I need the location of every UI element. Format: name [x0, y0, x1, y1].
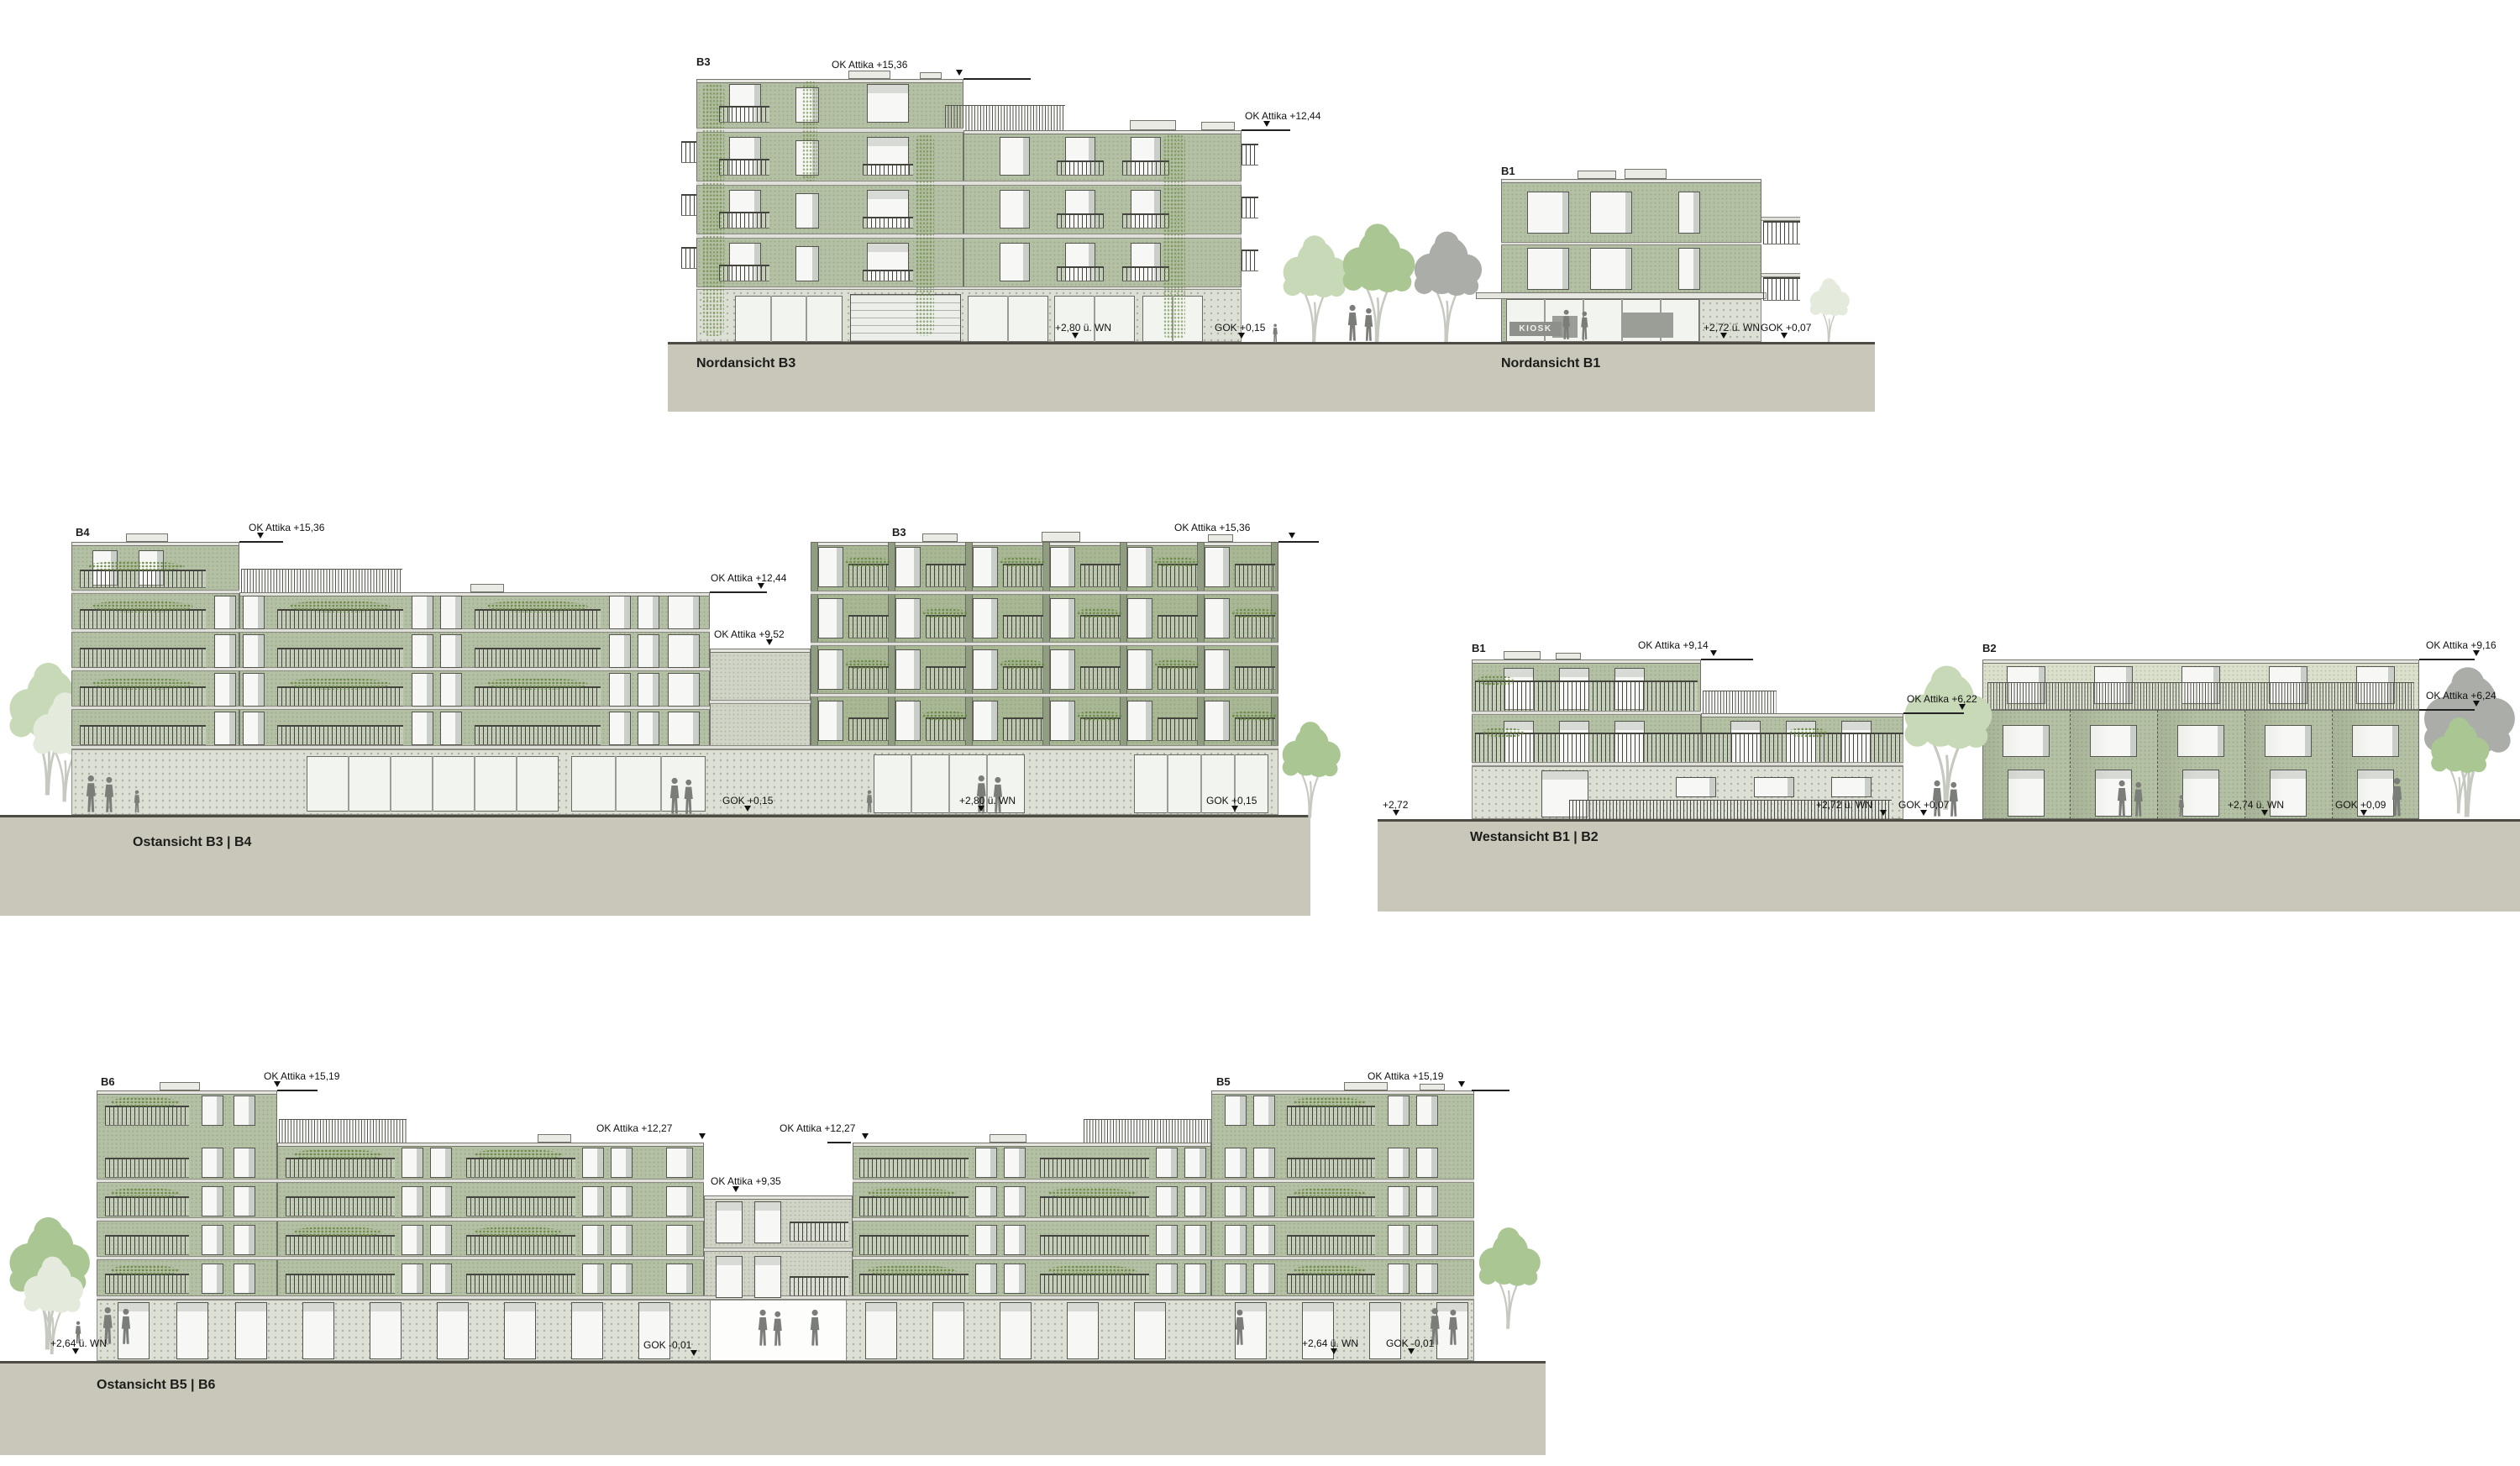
- building-label: B3: [892, 526, 906, 539]
- window: [666, 1186, 693, 1216]
- balcony-plants: [475, 1149, 563, 1160]
- window: [234, 1186, 255, 1216]
- annotation: GOK -0,01: [643, 1339, 691, 1351]
- tree-icon: [1789, 273, 1869, 344]
- balcony-railing: [1287, 1196, 1375, 1216]
- annotation-text: GOK +0,15: [1215, 322, 1265, 334]
- balcony-railing: [848, 717, 889, 741]
- floor-slab: [97, 1217, 704, 1222]
- balcony-railing: [926, 666, 966, 690]
- annotation: GOK +0,09: [2335, 799, 2386, 811]
- bay-separator: [2332, 710, 2334, 819]
- window: [1416, 1148, 1438, 1178]
- dim-line: [710, 591, 767, 593]
- balcony-railing: [105, 1196, 189, 1216]
- level-marker-icon: [766, 639, 773, 649]
- window: [214, 712, 236, 745]
- balcony-railing: [1057, 266, 1104, 281]
- attika-cap: [704, 1195, 853, 1200]
- tree-icon: [2419, 710, 2499, 815]
- attika-cap: [1472, 659, 1701, 664]
- window: [975, 1186, 997, 1216]
- window-mullion: [1094, 296, 1095, 342]
- elevation-title: Nordansicht B1: [1501, 356, 1600, 371]
- window: [611, 1225, 633, 1255]
- balcony-plants: [1000, 557, 1045, 567]
- level-marker-icon: [2360, 810, 2367, 819]
- rooftop-box: [922, 533, 958, 542]
- balcony-railing: [1122, 160, 1169, 176]
- window: [1225, 1225, 1247, 1255]
- dim-line: [1472, 1090, 1509, 1091]
- balcony-railing: [1003, 666, 1043, 690]
- balcony-plants: [294, 1149, 382, 1160]
- balcony-railing: [1158, 666, 1198, 690]
- rooftop-box: [1201, 122, 1235, 130]
- balcony-plants: [922, 711, 968, 721]
- window: [609, 634, 631, 668]
- building-label: B4: [76, 526, 90, 539]
- dim-line: [2419, 659, 2475, 660]
- balcony-railing: [475, 648, 601, 668]
- building-label: B1: [1501, 165, 1515, 177]
- balcony-railing: [277, 725, 403, 745]
- window: [402, 1264, 423, 1294]
- shop-interior: [1621, 313, 1673, 338]
- balcony-railing: [475, 725, 601, 745]
- balcony-plants: [868, 1265, 956, 1276]
- dim-line: [2419, 709, 2475, 711]
- floor-slab: [704, 1248, 853, 1252]
- annotation: OK Attika +15,36: [832, 59, 907, 71]
- balcony-railing: [859, 1235, 969, 1255]
- balcony-railing: [105, 1106, 189, 1126]
- roof-terrace-railing: [1703, 691, 1777, 713]
- person-icon: [1579, 311, 1590, 340]
- window: [1184, 1148, 1206, 1178]
- balcony-railing: [1122, 266, 1169, 281]
- attika-cap: [277, 1143, 704, 1147]
- window: [582, 1264, 604, 1294]
- window: [668, 712, 700, 745]
- annotation: OK Attika +9,35: [711, 1175, 781, 1187]
- window-door: [716, 1256, 743, 1298]
- balcony-railing: [681, 194, 696, 216]
- annotation: +2,72: [1383, 799, 1408, 811]
- window: [430, 1264, 452, 1294]
- annotation: OK Attika +6,22: [1907, 693, 1977, 705]
- vine-plants: [916, 134, 934, 336]
- floor-slab: [811, 591, 1278, 595]
- window: [412, 712, 433, 745]
- attika-cap: [71, 542, 239, 546]
- window: [440, 712, 462, 745]
- window: [1527, 192, 1569, 234]
- annotation-text: OK Attika +15,19: [1368, 1070, 1443, 1082]
- window: [1527, 248, 1569, 290]
- balcony-plants: [1231, 608, 1277, 618]
- annotation: OK Attika +12,27: [780, 1122, 855, 1134]
- window: [1000, 243, 1030, 281]
- annotation: OK Attika +12,44: [1245, 110, 1320, 122]
- tree-icon: [1256, 714, 1365, 819]
- balcony-plants: [1077, 711, 1122, 721]
- window: [214, 634, 236, 668]
- balcony-railing: [1158, 615, 1198, 638]
- window-mullion: [948, 754, 950, 813]
- balcony-railing: [1003, 564, 1043, 587]
- rooftop-box: [1504, 651, 1541, 659]
- garage-door: [850, 294, 961, 342]
- annotation-text: GOK -0,01: [1386, 1337, 1434, 1349]
- window: [1225, 1148, 1247, 1178]
- window: [430, 1186, 452, 1216]
- window: [975, 1225, 997, 1255]
- window: [1416, 1186, 1438, 1216]
- window: [1225, 1096, 1247, 1126]
- attika-cap: [1701, 713, 1903, 717]
- window: [1253, 1186, 1275, 1216]
- tree-icon: [1472, 1189, 1546, 1361]
- person-icon: [2390, 777, 2404, 817]
- balcony-railing: [80, 648, 206, 668]
- balcony-railing: [1242, 144, 1258, 166]
- rooftop-box: [1208, 534, 1233, 542]
- annotation: +2,64 ü. WN: [50, 1337, 107, 1349]
- balcony-railing: [863, 164, 913, 176]
- balcony-railing: [1080, 666, 1121, 690]
- balcony-railing: [1158, 564, 1198, 587]
- rooftop-box: [848, 71, 890, 79]
- window: [1253, 1096, 1275, 1126]
- annotation: GOK +0,07: [1761, 322, 1811, 334]
- kiosk-sign: KIOSK: [1509, 322, 1562, 336]
- balcony-plants: [1294, 1188, 1366, 1198]
- window: [202, 1264, 223, 1294]
- rooftop-box: [160, 1082, 200, 1090]
- balcony-plants: [1154, 557, 1200, 567]
- bay-separator: [2070, 710, 2071, 819]
- balcony-plants: [1294, 1097, 1366, 1107]
- dim-line: [1242, 129, 1290, 131]
- window: [243, 712, 265, 745]
- window-mullion: [660, 756, 662, 812]
- balcony-railing: [926, 615, 966, 638]
- window: [412, 596, 433, 629]
- window-mullion: [1167, 754, 1168, 813]
- level-marker-icon: [862, 1133, 869, 1143]
- window: [1388, 1186, 1410, 1216]
- person-icon: [102, 776, 116, 813]
- window: [611, 1186, 633, 1216]
- window: [430, 1225, 452, 1255]
- ground: [0, 1361, 1546, 1455]
- window: [1205, 547, 1230, 587]
- rooftop-box: [1625, 169, 1667, 179]
- window: [1831, 777, 1872, 797]
- floor-slab: [853, 1179, 1474, 1183]
- window: [582, 1186, 604, 1216]
- annotation: +2,80 ü. WN: [959, 795, 1016, 807]
- annotation: GOK -0,01: [1386, 1337, 1434, 1349]
- tree-icon: [1390, 223, 1504, 344]
- balcony-railing: [466, 1196, 575, 1216]
- elevation-title: Ostansicht B5 | B6: [97, 1378, 215, 1393]
- balcony-railing: [926, 717, 966, 741]
- window: [412, 634, 433, 668]
- annotation: OK Attika +15,19: [1368, 1070, 1443, 1082]
- annotation-text: OK Attika +15,19: [264, 1070, 339, 1082]
- attika-cap: [1982, 659, 2419, 664]
- elevation-title: Westansicht B1 | B2: [1470, 830, 1599, 845]
- window: [1678, 192, 1700, 234]
- window: [895, 598, 921, 638]
- window: [402, 1148, 423, 1178]
- window: [611, 1148, 633, 1178]
- window: [1050, 701, 1075, 741]
- balcony-plants: [868, 1188, 956, 1199]
- window: [1205, 649, 1230, 690]
- window: [818, 598, 843, 638]
- window-door: [867, 84, 909, 123]
- vine-plants: [702, 84, 724, 336]
- level-marker-icon: [1408, 1348, 1415, 1358]
- floor-slab: [97, 1179, 704, 1183]
- floor-slab: [1501, 242, 1761, 245]
- balcony-railing: [80, 570, 206, 588]
- balcony-railing: [848, 615, 889, 638]
- balcony-plants: [922, 608, 968, 618]
- balcony-plants: [111, 1188, 180, 1198]
- window-door: [235, 1302, 267, 1359]
- person-icon: [1446, 1309, 1460, 1346]
- balcony-railing: [1158, 717, 1198, 741]
- annotation-text: +2,80 ü. WN: [959, 795, 1016, 807]
- dim-line: [1701, 659, 1753, 660]
- annotation: OK Attika +15,36: [1174, 522, 1250, 533]
- window: [234, 1148, 255, 1178]
- balcony-plants: [1000, 659, 1045, 670]
- annotation: GOK +0,15: [722, 795, 773, 807]
- window: [975, 1148, 997, 1178]
- annotation-text: OK Attika +6,22: [1907, 693, 1977, 705]
- window: [1388, 1264, 1410, 1294]
- window: [609, 712, 631, 745]
- window-mullion: [911, 754, 912, 813]
- window-mullion: [1007, 296, 1009, 342]
- balcony-railing: [1287, 1274, 1375, 1294]
- window: [1050, 547, 1075, 587]
- annotation-text: OK Attika +12,44: [711, 572, 786, 584]
- person-icon: [865, 790, 874, 813]
- level-marker-icon: [732, 1186, 739, 1195]
- balcony-plants: [1048, 1188, 1137, 1199]
- balcony-plants: [1154, 659, 1200, 670]
- balcony-railing: [277, 648, 403, 668]
- window-door: [1369, 1302, 1401, 1359]
- annotation-text: GOK -0,01: [643, 1339, 691, 1351]
- rooftop-box: [920, 72, 942, 79]
- balcony-railing: [719, 106, 769, 123]
- window-door: [1067, 1302, 1099, 1359]
- window: [582, 1225, 604, 1255]
- window-mullion: [516, 756, 517, 812]
- balcony-railing: [1003, 717, 1043, 741]
- balcony-railing: [105, 1158, 189, 1178]
- vine-plants: [802, 81, 817, 181]
- building-label: B6: [101, 1075, 115, 1088]
- window: [895, 701, 921, 741]
- window: [1156, 1148, 1178, 1178]
- attika-cap: [696, 79, 963, 83]
- annotation-text: +2,72: [1383, 799, 1408, 811]
- window-door: [1302, 1302, 1334, 1359]
- annotation: +2,72 ü. WN: [1704, 322, 1760, 334]
- floor-slab: [696, 181, 1242, 186]
- rooftop-box: [1042, 532, 1080, 542]
- window: [1205, 701, 1230, 741]
- balcony-railing: [1235, 615, 1275, 638]
- annotation: +2,64 ü. WN: [1302, 1337, 1358, 1349]
- person-icon: [2115, 780, 2129, 817]
- window: [973, 598, 998, 638]
- balcony-plants: [1048, 1265, 1137, 1276]
- balcony-railing: [1475, 680, 1698, 715]
- level-marker-icon: [699, 1133, 706, 1143]
- annotation-text: OK Attika +6,24: [2426, 690, 2496, 701]
- balcony-railing: [1235, 666, 1275, 690]
- window: [1127, 598, 1152, 638]
- elevation-title: Nordansicht B3: [696, 356, 795, 371]
- balcony-plants: [294, 1227, 382, 1237]
- balcony-railing: [1475, 733, 1903, 766]
- annotation: OK Attika +12,27: [596, 1122, 672, 1134]
- window: [1590, 248, 1632, 290]
- floor-slab: [710, 700, 811, 704]
- balcony-railing: [1080, 615, 1121, 638]
- person-icon: [1272, 323, 1278, 343]
- annotation-text: +2,72 ü. WN: [1704, 322, 1760, 334]
- balcony-railing: [681, 247, 696, 269]
- window: [895, 547, 921, 587]
- balcony-railing: [286, 1196, 395, 1216]
- person-icon: [668, 777, 681, 815]
- person-icon: [1561, 309, 1572, 340]
- window: [1754, 777, 1794, 797]
- balcony-railing: [1242, 197, 1258, 218]
- balcony-railing: [1080, 717, 1121, 741]
- window: [638, 634, 659, 668]
- balcony-plants: [1789, 728, 1828, 738]
- balcony-railing: [926, 564, 966, 587]
- level-marker-icon: [1458, 1081, 1465, 1090]
- rooftop-box: [1556, 653, 1581, 659]
- window-mullion: [615, 756, 617, 812]
- balcony-railing: [286, 1274, 395, 1294]
- balcony-railing: [719, 265, 769, 281]
- balcony-plants: [487, 678, 588, 690]
- window: [1388, 1096, 1410, 1126]
- annotation-text: OK Attika +12,27: [780, 1122, 855, 1134]
- balcony-railing: [790, 1276, 848, 1296]
- roof-terrace-railing: [1084, 1119, 1211, 1143]
- window: [1253, 1264, 1275, 1294]
- window: [1388, 1148, 1410, 1178]
- window: [1127, 547, 1152, 587]
- balcony-railing: [1122, 213, 1169, 229]
- building-label: B2: [1982, 642, 1997, 654]
- window: [1050, 598, 1075, 638]
- dim-line: [827, 1142, 851, 1143]
- window: [666, 1225, 693, 1255]
- bay-separator: [2157, 710, 2159, 819]
- attika-cap: [1501, 179, 1761, 183]
- balcony-railing: [1040, 1158, 1149, 1178]
- window: [214, 673, 236, 707]
- balcony-plants: [111, 1265, 180, 1275]
- balcony-plants: [92, 678, 193, 690]
- dim-line: [1278, 541, 1319, 543]
- balcony-railing: [105, 1235, 189, 1255]
- window: [1205, 598, 1230, 638]
- window: [638, 673, 659, 707]
- window-door: [1134, 1302, 1166, 1359]
- annotation-text: OK Attika +15,36: [832, 59, 907, 71]
- balcony-plants: [88, 561, 185, 571]
- balcony-plants: [1483, 728, 1525, 738]
- roof-terrace-railing: [241, 569, 402, 592]
- annotation: OK Attika +15,36: [249, 522, 324, 533]
- balcony-plants: [111, 1097, 180, 1107]
- floor-slab: [853, 1256, 1474, 1260]
- balcony-plants: [487, 601, 588, 612]
- level-marker-icon: [978, 806, 984, 815]
- window: [402, 1225, 423, 1255]
- balcony-railing: [1287, 1106, 1375, 1126]
- window: [818, 649, 843, 690]
- level-marker-icon: [2261, 810, 2268, 819]
- person-icon: [771, 1311, 784, 1347]
- rooftop-box: [990, 1134, 1026, 1143]
- tree-icon: [1894, 647, 1999, 819]
- balcony-railing: [466, 1158, 575, 1178]
- annotation-text: +2,72 ü. WN: [1816, 799, 1872, 811]
- window: [202, 1096, 223, 1126]
- roof-terrace-railing: [945, 105, 1065, 130]
- level-marker-icon: [690, 1350, 697, 1359]
- balcony-railing: [286, 1158, 395, 1178]
- floor-slab: [97, 1256, 704, 1260]
- window-door: [302, 1302, 334, 1359]
- window-door: [716, 1201, 743, 1243]
- annotation-text: OK Attika +9,52: [714, 628, 785, 640]
- person-icon: [682, 779, 695, 815]
- balcony-plants: [1294, 1265, 1366, 1275]
- window: [243, 673, 265, 707]
- person-icon: [756, 1309, 769, 1347]
- attika-cap: [963, 130, 1242, 134]
- ground-floor-facade: [1699, 299, 1761, 342]
- balcony-railing: [848, 666, 889, 690]
- window: [1676, 777, 1716, 797]
- annotation: GOK +0,15: [1215, 322, 1265, 334]
- balcony-railing: [80, 725, 206, 745]
- person-icon: [84, 775, 98, 813]
- window-mullion: [770, 296, 772, 342]
- balcony-plants: [92, 601, 193, 612]
- balcony-railing: [1763, 221, 1800, 244]
- elevation-sheet: KIOSKB3OK Attika +15,36OK Attika +12,44+…: [0, 0, 2520, 1466]
